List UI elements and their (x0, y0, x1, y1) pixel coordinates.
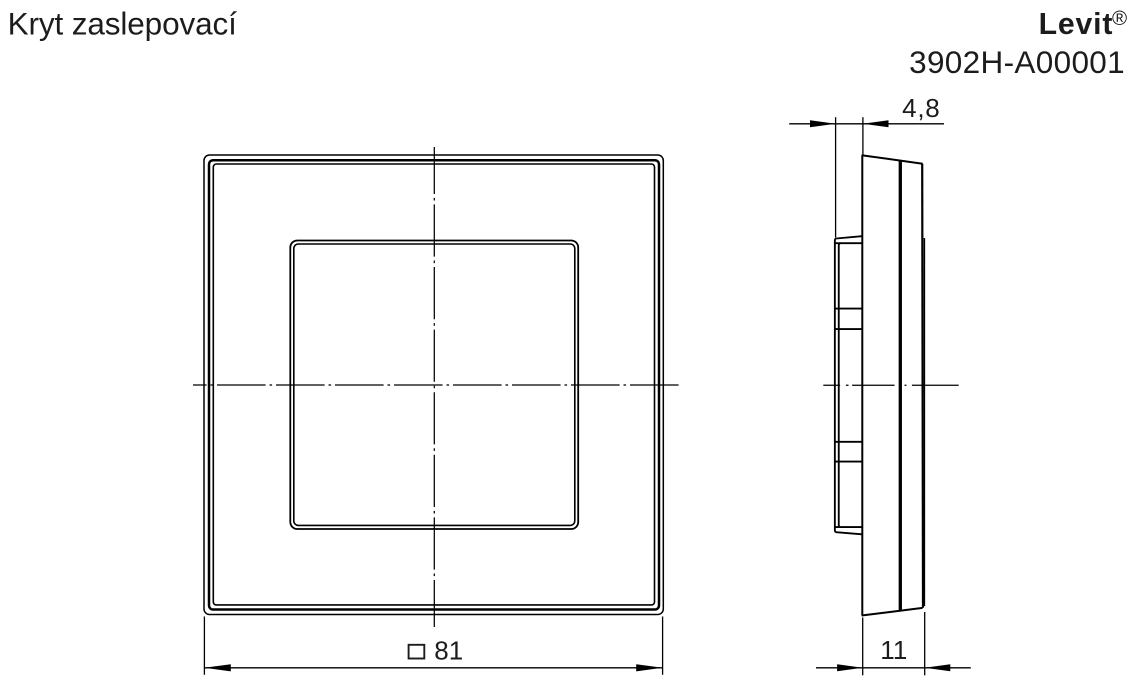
svg-text:11: 11 (880, 635, 907, 665)
svg-text:Kryt zaslepovací: Kryt zaslepovací (8, 6, 238, 42)
svg-text:4,8: 4,8 (902, 93, 940, 123)
svg-text:®: ® (1112, 7, 1127, 30)
svg-text:3902H-A00001: 3902H-A00001 (909, 44, 1125, 80)
svg-text:81: 81 (434, 635, 463, 665)
svg-text:Levit: Levit (1039, 8, 1114, 41)
